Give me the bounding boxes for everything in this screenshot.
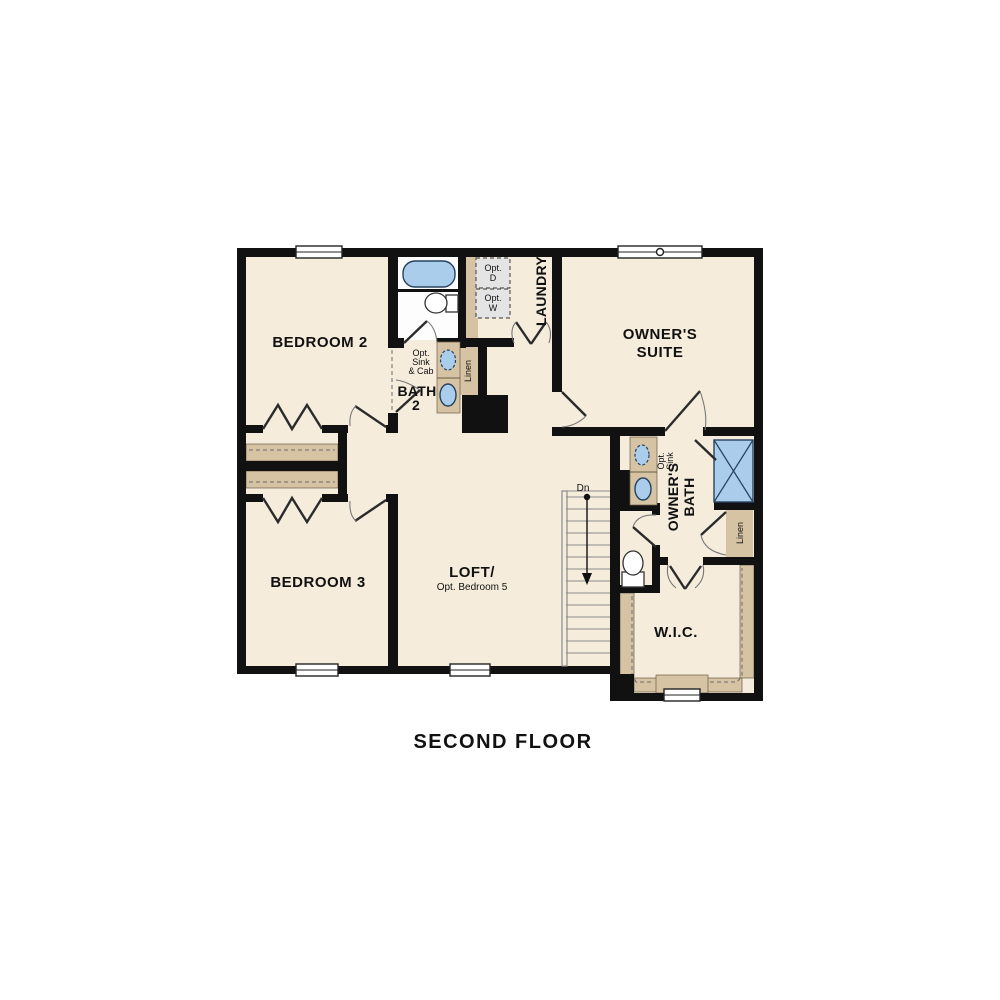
- loft-label: LOFT/: [449, 564, 495, 581]
- hall-linen-label: Linen: [463, 360, 473, 382]
- optional-sink-bath2: [441, 350, 456, 370]
- bedroom2-closet-shelf: [246, 444, 338, 461]
- owners-bath-label-line1: OWNER'S: [665, 463, 681, 531]
- bathtub: [403, 261, 455, 287]
- bath2-opt-note-line3: & Cab: [408, 366, 433, 376]
- owners-suite-label-line1: OWNER'S: [623, 326, 698, 343]
- optional-sink-owners-bath: [635, 445, 649, 465]
- vanity-bath2: [437, 342, 460, 413]
- owners-suite-label-line2: SUITE: [637, 344, 684, 361]
- loft-window: [450, 664, 490, 676]
- owners-linen-label: Linen: [735, 522, 745, 544]
- wic-label: W.I.C.: [654, 624, 698, 641]
- plan-caption: SECOND FLOOR: [413, 731, 592, 753]
- owners-opt-sink-label-line2: Sink: [665, 452, 675, 470]
- sink-bath2: [440, 384, 456, 406]
- opt-dryer-label-line1: Opt.: [484, 263, 501, 273]
- owners-bath-label-line2: BATH: [681, 477, 697, 516]
- floor-plan-canvas: BEDROOM 2 BEDROOM 3 OWNER'S SUITE LOFT/ …: [0, 0, 1000, 1000]
- owners-suite-window: [618, 246, 702, 258]
- sink-owners-bath: [635, 478, 651, 500]
- stairs-dn-label: Dn: [577, 483, 590, 494]
- bedroom3-closet-shelf: [246, 471, 338, 488]
- loft-opt-label: Opt. Bedroom 5: [437, 582, 508, 593]
- bath2-label-line2: 2: [412, 397, 420, 413]
- bedroom2-label: BEDROOM 2: [272, 334, 367, 351]
- opt-washer-label-line1: Opt.: [484, 293, 501, 303]
- laundry-label: LAUNDRY: [533, 256, 549, 326]
- vanity-owners-bath: [630, 437, 657, 505]
- opt-washer-label-line2: W: [489, 303, 498, 313]
- bedroom2-window: [296, 246, 342, 258]
- shower-owners-bath: [714, 440, 753, 502]
- toilet-bath2: [425, 293, 458, 313]
- bedroom3-label: BEDROOM 3: [270, 574, 365, 591]
- window-egress-marker: [657, 249, 664, 256]
- opt-dryer-label-line2: D: [490, 273, 497, 283]
- wic-window: [664, 689, 700, 701]
- toilet-owners-wc: [622, 551, 644, 587]
- bedroom3-window: [296, 664, 338, 676]
